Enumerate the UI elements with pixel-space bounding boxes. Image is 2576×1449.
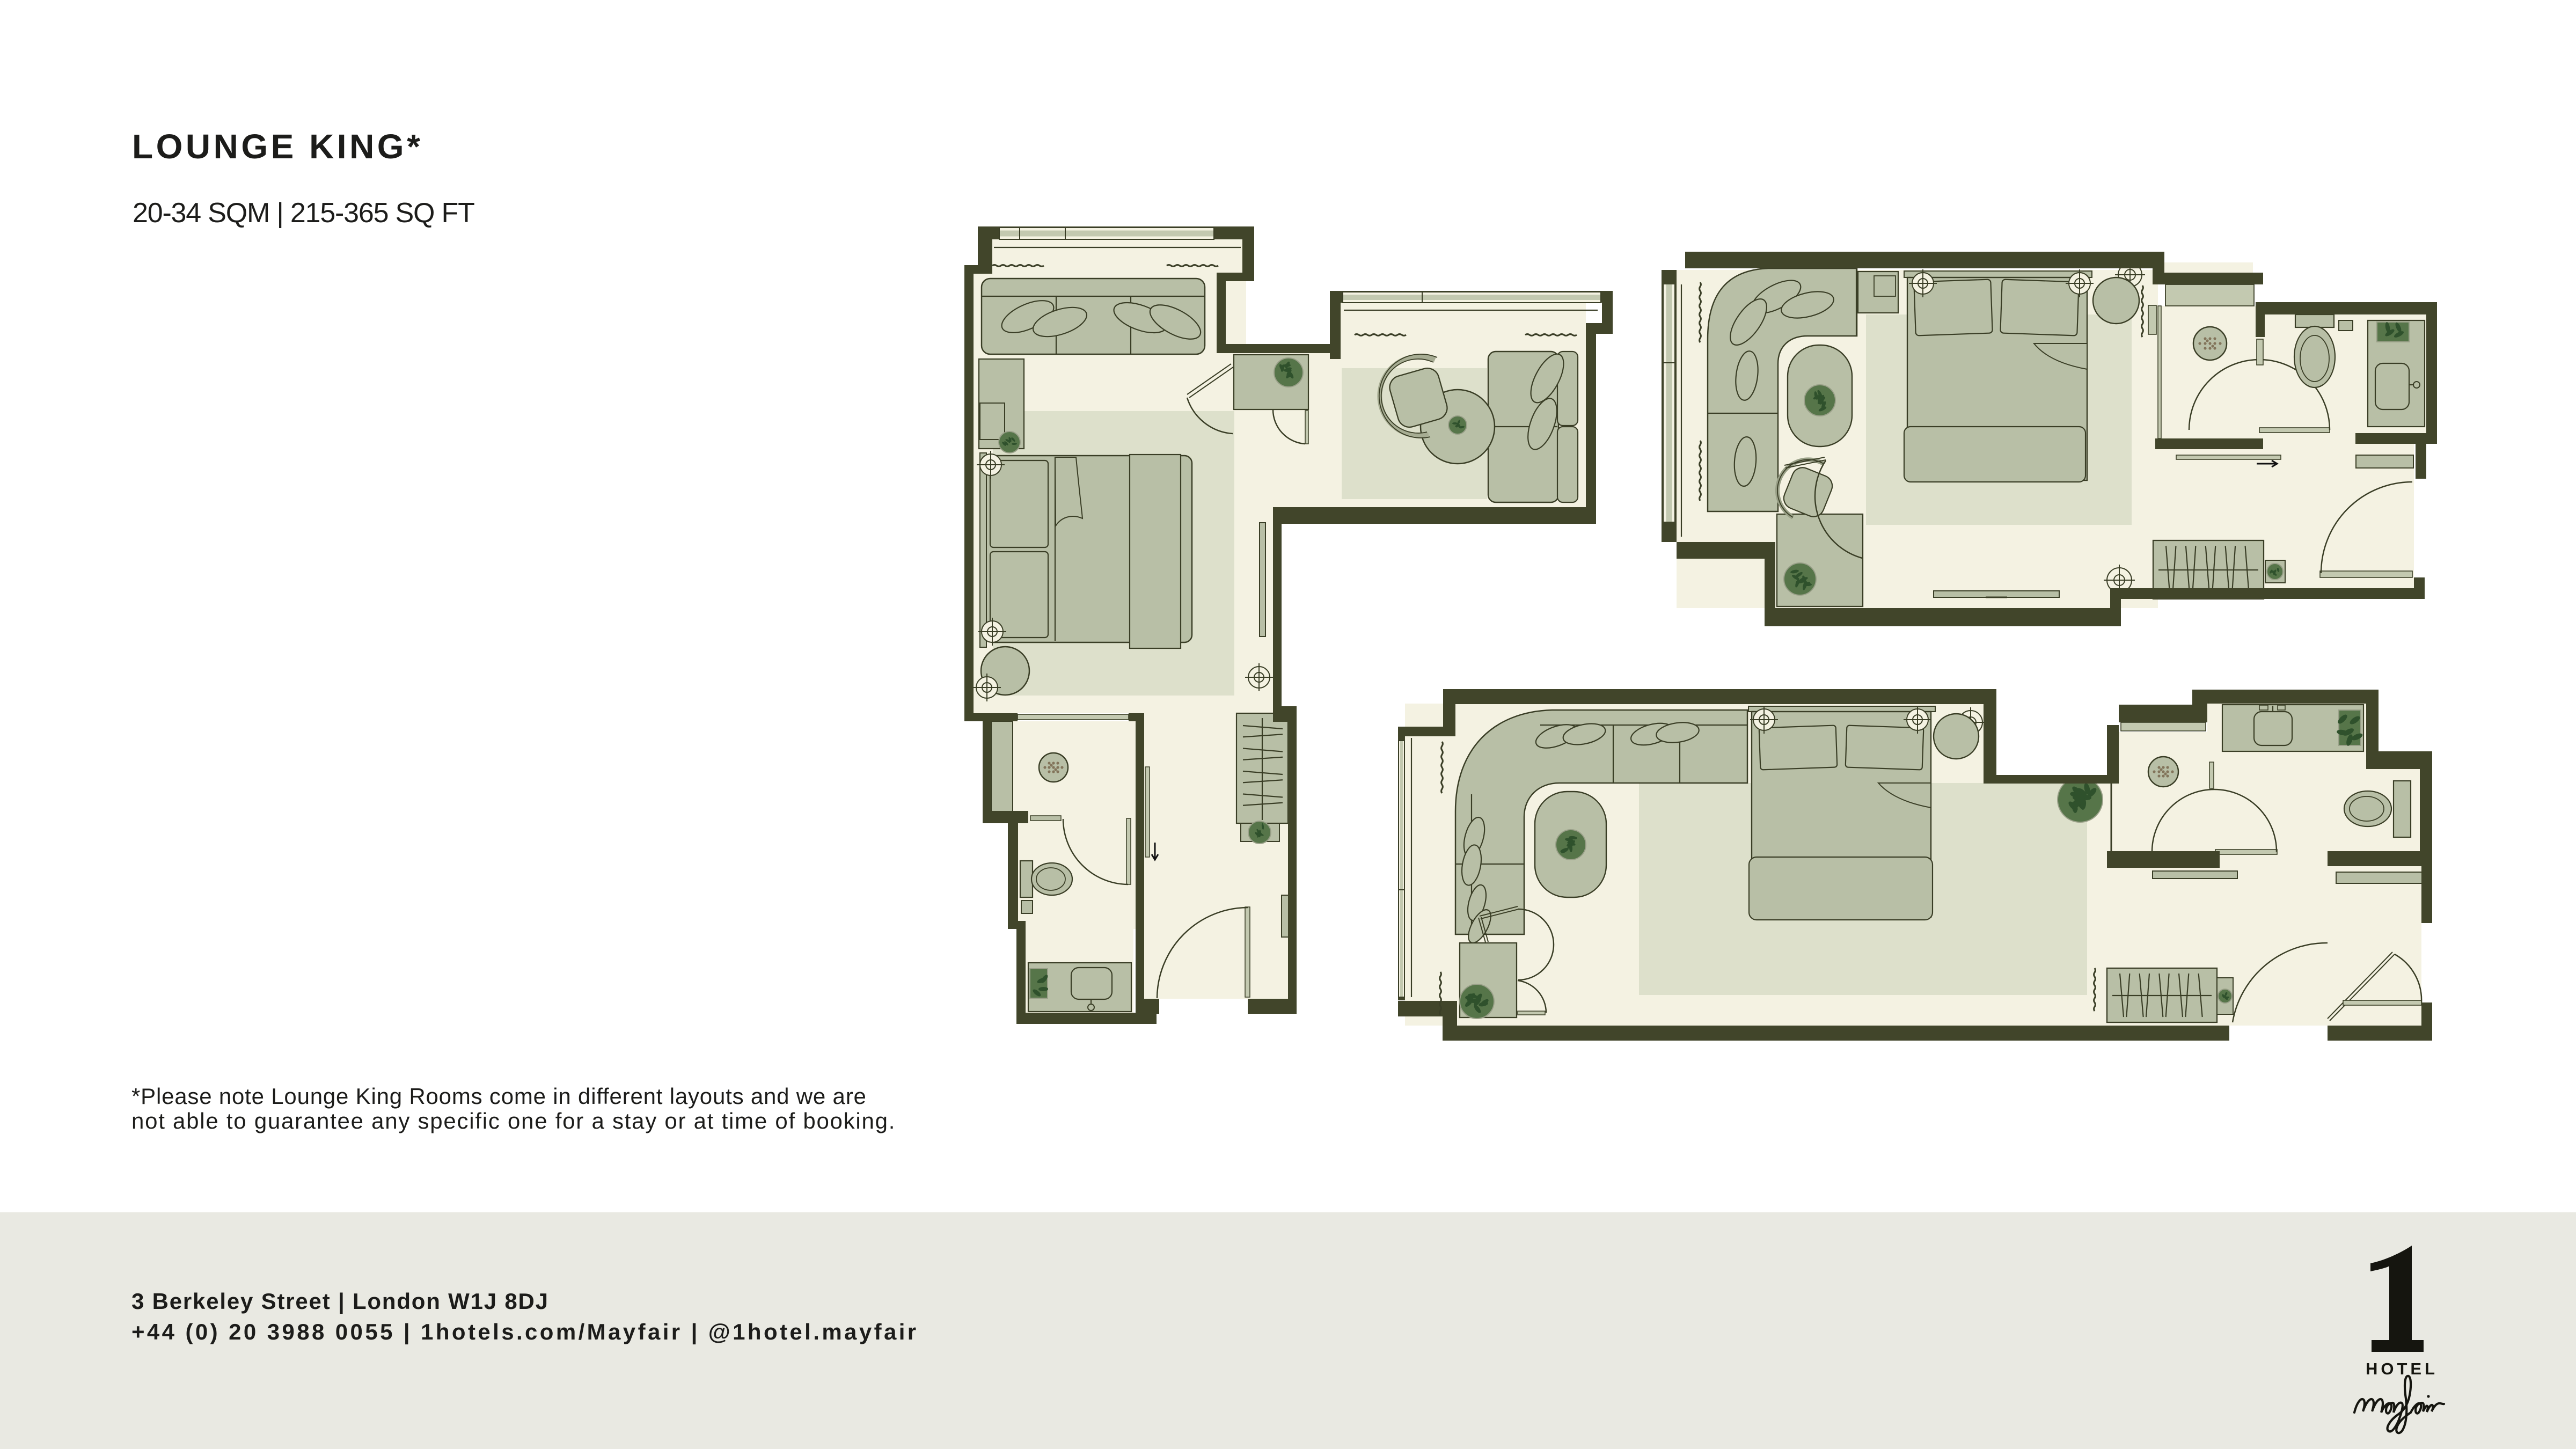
svg-text:*Please note Lounge King Rooms: *Please note Lounge King Rooms come in d… <box>131 1084 867 1109</box>
svg-text:+44 (0) 20 3988 0055 | 1hotels: +44 (0) 20 3988 0055 | 1hotels.com/Mayfa… <box>131 1319 919 1345</box>
svg-text:LOUNGE KING*: LOUNGE KING* <box>132 127 423 166</box>
svg-text:not able to guarantee any spec: not able to guarantee any specific one f… <box>131 1108 896 1133</box>
svg-text:3 Berkeley Street | London W1J: 3 Berkeley Street | London W1J 8DJ <box>131 1289 549 1314</box>
svg-text:HOTEL: HOTEL <box>2366 1359 2438 1378</box>
svg-text:20-34 SQM | 215-365 SQ FT: 20-34 SQM | 215-365 SQ FT <box>133 197 474 229</box>
